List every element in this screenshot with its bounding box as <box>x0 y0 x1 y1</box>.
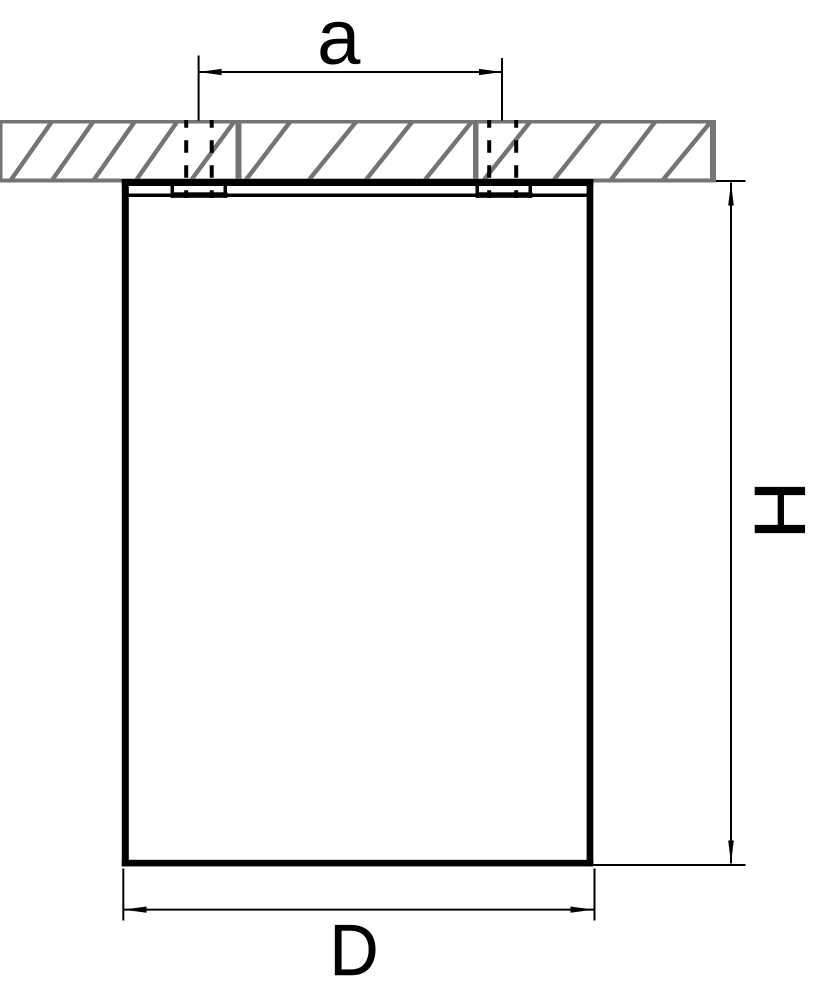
svg-text:H: H <box>739 481 816 540</box>
svg-text:D: D <box>330 910 379 991</box>
svg-text:a: a <box>317 0 361 81</box>
